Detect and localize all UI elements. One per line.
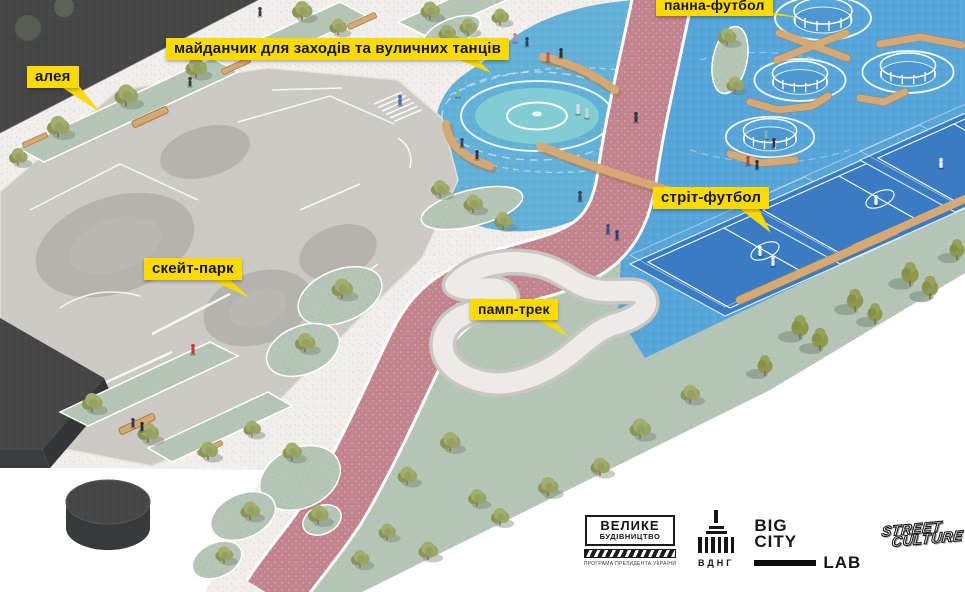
footer-logos: ВЕЛИКЕ БУДІВНИЦТВО ПРОГРАМА ПРЕЗИДЕНТА У… (582, 504, 964, 582)
vdnh-fountain-icon (714, 510, 718, 523)
street-culture-logo: STREET CULTURE (880, 518, 965, 550)
velyke-line1: ВЕЛИКЕ (590, 519, 670, 532)
dark-cylinder (66, 480, 150, 550)
vdnh-line2 (706, 531, 727, 534)
velyke-subtext: ПРОГРАМА ПРЕЗИДЕНТА УКРАЇНИ (582, 561, 678, 567)
vdnh-line1 (709, 526, 724, 529)
label-events-area: майданчик для заходів та вуличних танців (166, 38, 509, 60)
vdnh-bars-icon (698, 537, 734, 553)
hatch-stripe-icon (584, 549, 676, 558)
vdnh-logo: ВДНГ (698, 510, 734, 568)
vdnh-label: ВДНГ (698, 558, 734, 568)
velyke-budivnytstvo-logo: ВЕЛИКЕ БУДІВНИЦТВО ПРОГРАМА ПРЕЗИДЕНТА У… (582, 515, 678, 567)
park-plan-poster: панна-футбол майданчик для заходів та ву… (0, 0, 965, 592)
bcl-lab: LAB (823, 553, 861, 573)
velyke-line2: БУДІВНИЦТВО (590, 532, 670, 541)
bcl-rule-icon (754, 560, 816, 566)
bcl-city: CITY (754, 534, 861, 550)
bcl-row: LAB (754, 553, 861, 573)
label-panna-football: панна-футбол (656, 0, 773, 16)
label-alley: алея (27, 66, 79, 88)
label-pump-track: памп-трек (470, 299, 558, 320)
label-street-football: стріт-футбол (653, 187, 769, 209)
label-skate-park: скейт-парк (144, 258, 242, 280)
big-city-lab-logo: BIG CITY LAB (754, 518, 861, 573)
velyke-budivnytstvo-box: ВЕЛИКЕ БУДІВНИЦТВО (585, 515, 675, 546)
